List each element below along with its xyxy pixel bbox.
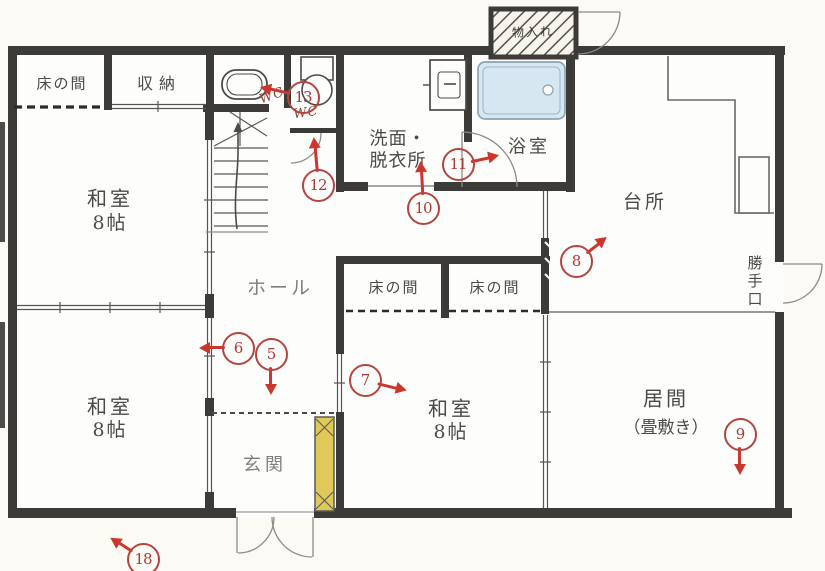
annotation-circle-10: 10 <box>407 192 440 225</box>
annotation-number: 10 <box>414 199 431 217</box>
room-label-kitchen: 台所 <box>623 192 667 214</box>
annotation-marker-10: 10 <box>407 192 440 225</box>
annotation-circle-18: 18 <box>127 543 160 571</box>
annotation-circle-8: 8 <box>560 245 593 278</box>
annotation-number: 6 <box>234 339 243 357</box>
annotation-number: 5 <box>267 345 276 363</box>
annotation-circle-7: 7 <box>349 364 382 397</box>
annotation-circle-6: 6 <box>222 332 255 365</box>
annotation-circle-13: 13 <box>287 81 320 114</box>
shoe-cabinet-fixture <box>315 417 334 511</box>
annotation-number: 7 <box>361 371 370 389</box>
room-label-living: 居間 <box>643 388 689 411</box>
room-label-washitsu-c-size: 8帖 <box>433 422 468 444</box>
annotation-number: 9 <box>736 425 745 443</box>
room-label-washitsu-c: 和室 <box>428 398 474 421</box>
annotation-marker-12: 12 <box>302 169 335 202</box>
annotation-number: 8 <box>572 252 581 270</box>
annotation-marker-18: 18 <box>127 543 160 571</box>
room-label-washitsu-nw: 和室 <box>87 188 133 211</box>
annotation-marker-5: 5 <box>255 338 288 371</box>
annotation-number: 11 <box>449 155 466 173</box>
annotation-circle-5: 5 <box>255 338 288 371</box>
annotation-number: 13 <box>294 88 311 106</box>
scan-artifact <box>0 322 5 428</box>
room-label-genkan: 玄関 <box>243 456 287 477</box>
scan-artifact <box>0 122 5 242</box>
annotation-marker-8: 8 <box>560 245 593 278</box>
annotation-marker-6: 6 <box>222 332 255 365</box>
room-label-washitsu-sw: 和室 <box>87 396 133 419</box>
room-label-tokonoma-nw: 床の間 <box>36 75 87 92</box>
room-label-bathroom: 浴室 <box>508 138 550 159</box>
annotation-marker-9: 9 <box>724 418 757 451</box>
bathtub-fixture <box>478 62 565 119</box>
annotation-marker-7: 7 <box>349 364 382 397</box>
annotation-circle-11: 11 <box>442 148 475 181</box>
annotation-circle-12: 12 <box>302 169 335 202</box>
room-label-washitsu-sw-size: 8帖 <box>92 420 127 442</box>
room-label-living-note: （畳敷き） <box>624 419 709 439</box>
room-label-tokonoma-c2: 床の間 <box>469 279 520 296</box>
washbasin-fixture <box>423 60 466 110</box>
floor-plan-image: 床の間 収納 和室 8帖 和室 8帖 ホール 玄関 洗面・ 脱衣所 浴室 台所 … <box>0 0 825 571</box>
room-label-katteguchi: 勝手口 <box>745 255 766 309</box>
annotation-circle-9: 9 <box>724 418 757 451</box>
room-label-outbuilding: 物入れ <box>512 25 554 40</box>
annotation-number: 12 <box>309 176 326 194</box>
annotation-marker-13: 13 <box>287 81 320 114</box>
annotation-marker-11: 11 <box>442 148 475 181</box>
annotation-number: 18 <box>134 550 151 568</box>
room-label-closet: 収納 <box>137 75 181 93</box>
room-label-tokonoma-c1: 床の間 <box>368 279 419 296</box>
room-label-washitsu-nw-size: 8帖 <box>92 213 127 235</box>
room-label-washroom-line1: 洗面・ <box>370 130 427 151</box>
room-label-hall: ホール <box>247 278 313 300</box>
